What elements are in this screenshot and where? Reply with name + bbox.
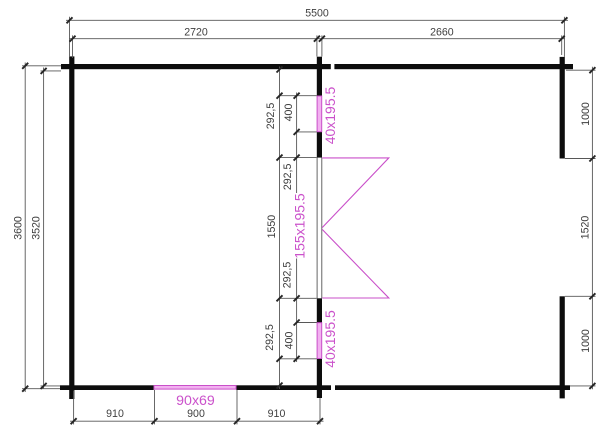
svg-text:155x195.5: 155x195.5 <box>292 193 308 259</box>
svg-text:40x195.5: 40x195.5 <box>322 310 338 368</box>
svg-text:292,5: 292,5 <box>282 164 294 191</box>
svg-text:292,5: 292,5 <box>282 262 294 289</box>
svg-text:40x195.5: 40x195.5 <box>322 86 338 144</box>
svg-text:292,5: 292,5 <box>264 324 276 351</box>
svg-text:2720: 2720 <box>184 26 208 38</box>
svg-text:90x69: 90x69 <box>176 393 215 409</box>
svg-text:910: 910 <box>268 408 286 420</box>
svg-text:1520: 1520 <box>579 216 591 240</box>
svg-text:400: 400 <box>283 104 295 122</box>
svg-text:1000: 1000 <box>580 102 592 126</box>
svg-text:5500: 5500 <box>305 8 329 20</box>
svg-text:910: 910 <box>106 408 124 420</box>
svg-text:3520: 3520 <box>31 216 43 240</box>
svg-text:292,5: 292,5 <box>265 103 277 130</box>
svg-text:900: 900 <box>187 408 205 420</box>
svg-text:2660: 2660 <box>430 26 454 38</box>
svg-text:400: 400 <box>284 332 296 350</box>
svg-text:1000: 1000 <box>580 329 592 353</box>
svg-text:3600: 3600 <box>12 216 24 240</box>
svg-text:1550: 1550 <box>266 215 278 239</box>
